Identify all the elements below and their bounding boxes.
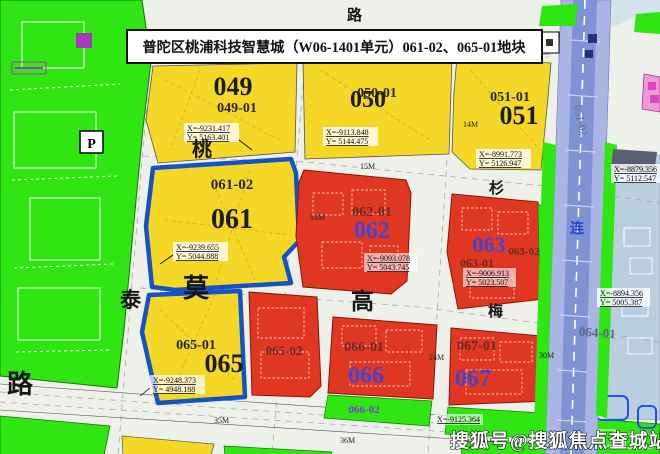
green-verge-1: [539, 4, 578, 26]
title-box: 普陀区桃浦科技智慧城（W06-1401单元）061-02、065-01地块: [127, 30, 542, 63]
coord-061-y: Y= 5044.888: [176, 252, 218, 261]
label-064-01: 064-01: [578, 324, 616, 342]
label-062: 062: [354, 218, 390, 244]
label-063-01: 063-01: [460, 256, 494, 270]
coord-062-y: Y= 5043.745: [367, 263, 409, 272]
road-char-gao: 高: [351, 288, 374, 314]
coord-051-y: Y= 5126.947: [479, 159, 521, 168]
coord-051-x: X=-8991.773: [479, 150, 522, 159]
road-char-mei: 梅: [488, 302, 503, 320]
width-30m: 30M: [539, 351, 554, 360]
coord-062-x: X=-9093.078: [367, 254, 410, 263]
label-066: 066: [348, 363, 384, 389]
label-049: 049: [214, 72, 253, 101]
coord-065-y: Y= 4948.188: [153, 385, 195, 394]
coord-063-y: Y= 5023.507: [466, 278, 508, 287]
coord-green-x: X=-9125.364: [437, 415, 480, 424]
label-061-02: 061-02: [211, 177, 254, 193]
label-067-01: 067-01: [457, 339, 497, 354]
width-14m-a: 14M: [463, 120, 478, 129]
label-049-01: 049-01: [217, 101, 257, 116]
coord-065-x: X=-9248.373: [153, 376, 196, 385]
coord-050-y: Y= 5144.475: [326, 137, 368, 146]
coord-r1-y: Y= 5112.547: [614, 174, 656, 183]
label-067: 067: [455, 366, 491, 392]
road-char-tao: 桃: [192, 138, 212, 161]
width-24m: 24M: [429, 353, 444, 362]
map-title: 普陀区桃浦科技智慧城（W06-1401单元）061-02、065-01地块: [142, 39, 526, 56]
pink-parcel: [642, 74, 660, 112]
coord-063-x: X=-9006.913: [466, 269, 509, 278]
map-svg: P: [0, 0, 660, 454]
road-char-lu-top: 路: [347, 6, 363, 24]
label-066-01: 066-01: [344, 340, 384, 355]
label-061: 061: [211, 204, 253, 235]
road-char-mo: 莫: [183, 274, 210, 303]
label-063-02: 063-02: [508, 246, 540, 258]
planning-map: P: [0, 0, 660, 454]
parking-label: P: [87, 137, 96, 152]
label-050: 050: [350, 87, 386, 113]
green-verge-2: [634, 12, 660, 34]
watermark: 搜狐号@搜狐焦点查城站: [450, 429, 660, 452]
coord-r1-x: X=-8879.356: [614, 165, 657, 174]
label-065-02: 065-02: [266, 343, 303, 358]
coord-r2-y: Y= 5005.387: [600, 298, 642, 307]
width-15m: 15M: [360, 162, 375, 171]
coord-050-x: X=-9113.848: [326, 128, 369, 137]
label-063: 063: [473, 232, 506, 257]
road-char-tai: 泰: [119, 288, 142, 312]
coord-r2-x: X=-8894.356: [600, 289, 643, 298]
road-char-lu: 路: [7, 369, 34, 399]
width-14m-b: 14M: [310, 213, 325, 222]
road-char-lian: 连: [570, 220, 585, 237]
road-char-shan: 杉: [489, 179, 504, 197]
width-35m: 35M: [214, 416, 229, 425]
label-051: 051: [500, 101, 539, 130]
coord-061-x: X=-9239.655: [176, 243, 219, 252]
label-065: 065: [205, 349, 244, 378]
purple-landmark-icon: [76, 33, 92, 48]
label-066-02: 066-02: [348, 404, 380, 416]
coord-049-x: X=-9231.417: [187, 124, 230, 133]
width-36m: 36M: [340, 436, 355, 445]
parking-icon: P: [80, 131, 103, 153]
